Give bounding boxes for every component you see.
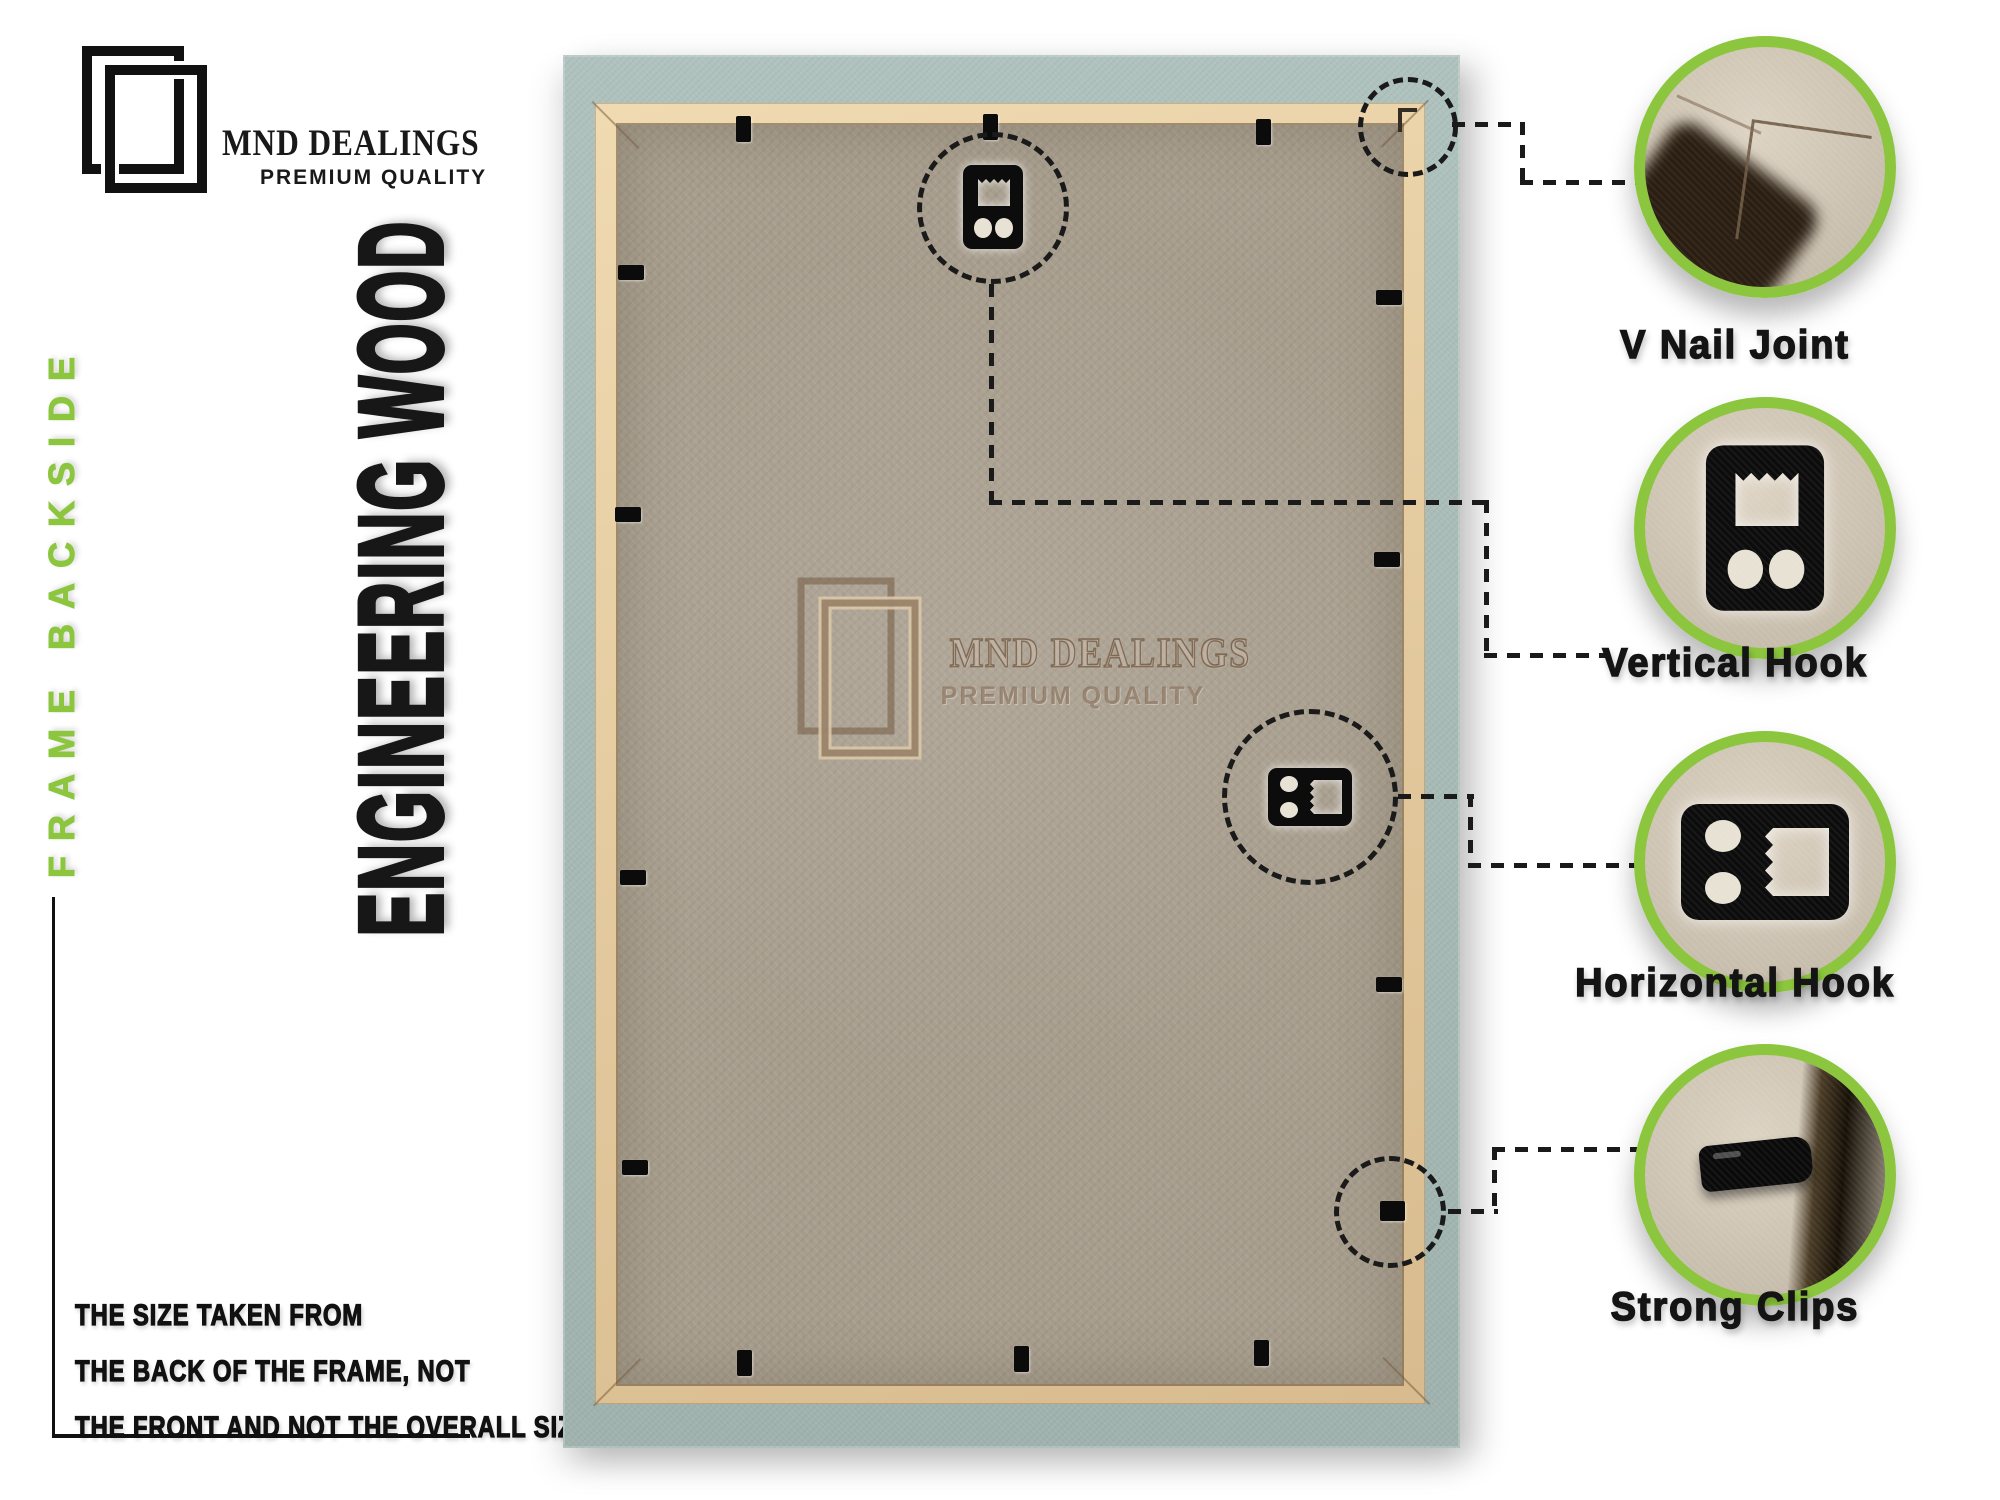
vnail-shadow xyxy=(1634,114,1825,298)
connector-dash xyxy=(1520,122,1525,184)
retainer-clip xyxy=(620,870,646,885)
retainer-clip xyxy=(736,116,751,142)
connector-dash xyxy=(989,500,1489,505)
connector-dash xyxy=(1448,1209,1498,1214)
v-nail-joint-label: V Nail Joint xyxy=(1521,323,1949,368)
watermark-text: MND DEALINGS PREMIUM QUALITY xyxy=(928,630,1218,711)
horizontal-hook-highlight-circle xyxy=(1222,709,1398,885)
frame-backside-label: FRAME BACKSIDE xyxy=(14,330,110,890)
v-nail-joint-callout-circle xyxy=(1634,36,1896,298)
frame-backside-text: FRAME BACKSIDE xyxy=(41,342,83,878)
brand-name: MND DEALINGS xyxy=(222,122,479,165)
size-note-line-3: THE FRONT AND NOT THE OVERALL SIZE. xyxy=(75,1400,598,1456)
retainer-clip xyxy=(1254,1340,1269,1366)
retainer-clip xyxy=(1376,290,1402,305)
size-note-line-2: THE BACK OF THE FRAME, NOT xyxy=(75,1344,598,1400)
watermark-brand-name: MND DEALINGS xyxy=(950,630,1197,678)
connector-dash xyxy=(1484,500,1489,658)
connector-dash xyxy=(1492,1147,1642,1152)
strong-clip-highlight-circle xyxy=(1334,1156,1446,1268)
infographic-canvas: MND DEALINGS PREMIUM QUALITY FRAME BACKS… xyxy=(0,0,2000,1500)
retainer-clip xyxy=(737,1350,752,1376)
retainer-clip xyxy=(618,265,644,280)
retainer-clip xyxy=(1256,119,1271,145)
vertical-hook-large-icon xyxy=(1702,439,1828,617)
connector-dash xyxy=(1468,794,1473,868)
connector-dash xyxy=(1468,863,1640,868)
connector-dash xyxy=(1452,122,1524,127)
vnail-crease xyxy=(1676,94,1761,134)
horizontal-hook-label: Horizontal Hook xyxy=(1521,961,1949,1006)
engineering-wood-text: ENGINEERING WOOD xyxy=(334,219,470,936)
vertical-hook-callout-circle xyxy=(1634,397,1896,659)
retainer-clip xyxy=(1014,1346,1029,1372)
connector-dash xyxy=(1492,1147,1497,1214)
watermark-tagline: PREMIUM QUALITY xyxy=(928,682,1218,711)
size-note-line-1: THE SIZE TAKEN FROM xyxy=(75,1288,598,1344)
strong-clips-callout-circle xyxy=(1634,1044,1896,1306)
connector-dash xyxy=(1520,180,1642,185)
horizontal-hook-callout-circle xyxy=(1634,731,1896,993)
retainer-clip xyxy=(622,1160,648,1175)
clip-glint xyxy=(1713,1151,1741,1160)
retainer-clip xyxy=(1376,977,1402,992)
vertical-hook-highlight-circle xyxy=(917,132,1069,284)
vnail-corner-crack xyxy=(1735,119,1872,256)
connector-dash xyxy=(989,284,994,504)
frames-logo-icon xyxy=(80,44,212,194)
watermark-logo-icon xyxy=(795,575,925,765)
strong-clips-label: Strong Clips xyxy=(1521,1285,1949,1330)
connector-dash xyxy=(1398,794,1474,799)
note-bracket-vertical-line xyxy=(52,897,55,1437)
engineering-wood-label: ENGINEERING WOOD xyxy=(338,210,466,945)
board-edge xyxy=(1785,1044,1896,1306)
horizontal-hook-large-icon xyxy=(1675,798,1855,926)
brand-tagline: PREMIUM QUALITY xyxy=(260,166,487,190)
strong-clip-large xyxy=(1698,1135,1814,1192)
corner-highlight-circle xyxy=(1358,77,1458,177)
vertical-hook-label: Vertical Hook xyxy=(1521,641,1949,686)
retainer-clip xyxy=(615,507,641,522)
retainer-clip xyxy=(1374,552,1400,567)
